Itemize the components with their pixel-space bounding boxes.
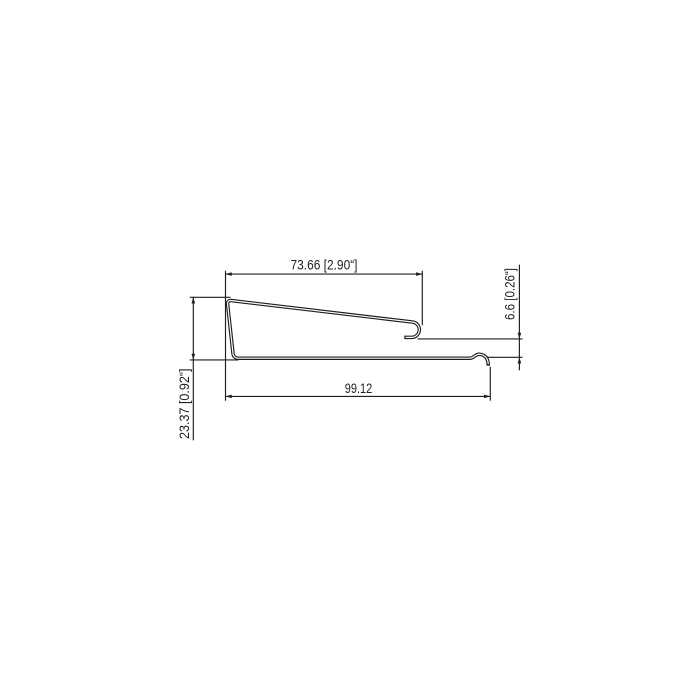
svg-text:23.37 [0.92“]: 23.37 [0.92“] [177, 368, 192, 439]
svg-text:6.6 [0.26“]: 6.6 [0.26“] [503, 268, 518, 320]
svg-text:99.12: 99.12 [345, 381, 373, 396]
svg-text:73.66 [2.90“]: 73.66 [2.90“] [291, 258, 358, 273]
